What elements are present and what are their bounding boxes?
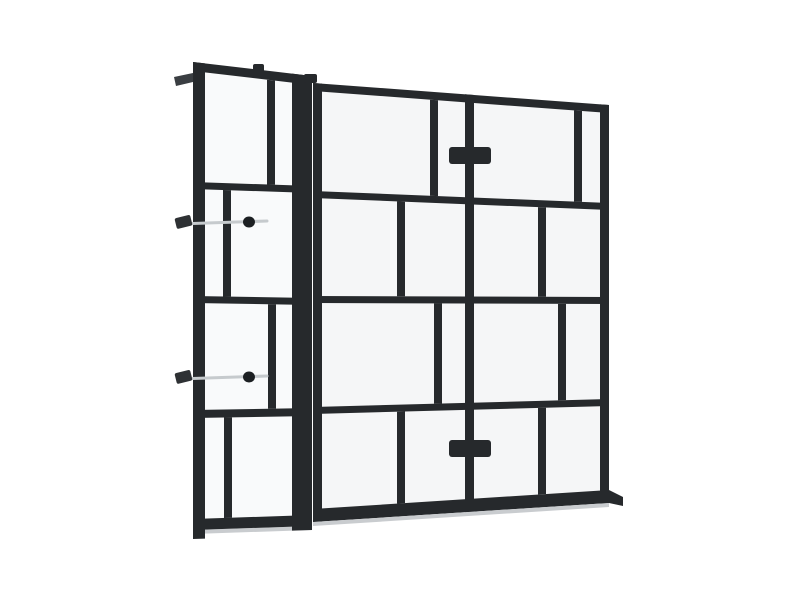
- stile-top-cap: [304, 74, 317, 83]
- door-panel-muntin: [224, 417, 232, 518]
- main-panel-muntin: [397, 412, 405, 504]
- door-panel-stile: [193, 62, 205, 539]
- shower-screen-render: [0, 0, 800, 600]
- top-bracket-tab: [253, 64, 264, 76]
- door-panel-muntin: [268, 304, 276, 408]
- main-panel-stile: [600, 104, 609, 503]
- main-panel-foot: [609, 490, 623, 506]
- main-panel-muntin: [397, 201, 405, 296]
- door-panel-muntin: [223, 190, 231, 297]
- main-panel-rail: [313, 296, 609, 304]
- main-panel-muntin: [558, 304, 566, 401]
- main-panel-muntin: [538, 408, 546, 495]
- stabilizer-wall-anchor: [174, 370, 192, 385]
- main-panel-stile: [313, 83, 322, 522]
- product-image-canvas: [0, 0, 800, 600]
- stabilizer-wall-anchor: [174, 215, 192, 230]
- main-panel-muntin: [434, 303, 442, 403]
- stabilizer-ball-joint: [243, 372, 255, 383]
- panel-handle: [449, 147, 491, 164]
- main-panel-muntin: [538, 207, 546, 297]
- wall-mount-stub: [174, 73, 193, 86]
- door-panel-muntin: [267, 80, 275, 185]
- door-panel-stile: [292, 74, 312, 531]
- panel-handle: [449, 440, 491, 457]
- main-panel-muntin: [430, 100, 438, 196]
- main-panel-muntin: [574, 110, 582, 202]
- stabilizer-ball-joint: [243, 217, 255, 228]
